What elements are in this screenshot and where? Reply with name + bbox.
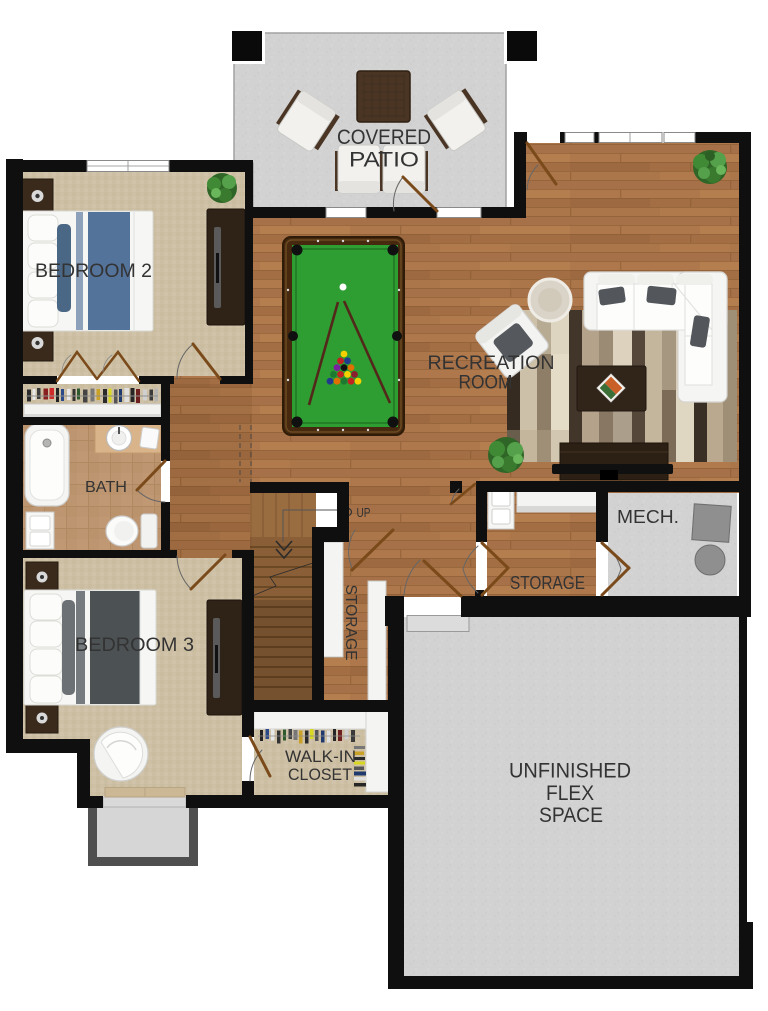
svg-text:CLOSET: CLOSET [288,765,352,784]
svg-text:PATIO: PATIO [349,149,419,172]
svg-text:MECH.: MECH. [617,507,679,527]
svg-text:COVERED: COVERED [337,126,431,149]
svg-text:FLEX: FLEX [546,782,594,805]
svg-text:WALK-IN: WALK-IN [285,747,356,766]
svg-text:UNFINISHED: UNFINISHED [509,760,631,783]
svg-text:BEDROOM 3: BEDROOM 3 [75,635,194,656]
svg-text:RECREATION: RECREATION [428,353,555,374]
svg-text:UP: UP [357,505,371,520]
svg-text:ROOM: ROOM [459,373,513,394]
svg-text:STORAGE: STORAGE [510,573,585,593]
svg-text:SPACE: SPACE [539,804,603,827]
svg-text:BEDROOM 2: BEDROOM 2 [35,261,152,282]
svg-text:STORAGE: STORAGE [342,585,359,661]
svg-text:BATH: BATH [85,479,127,496]
